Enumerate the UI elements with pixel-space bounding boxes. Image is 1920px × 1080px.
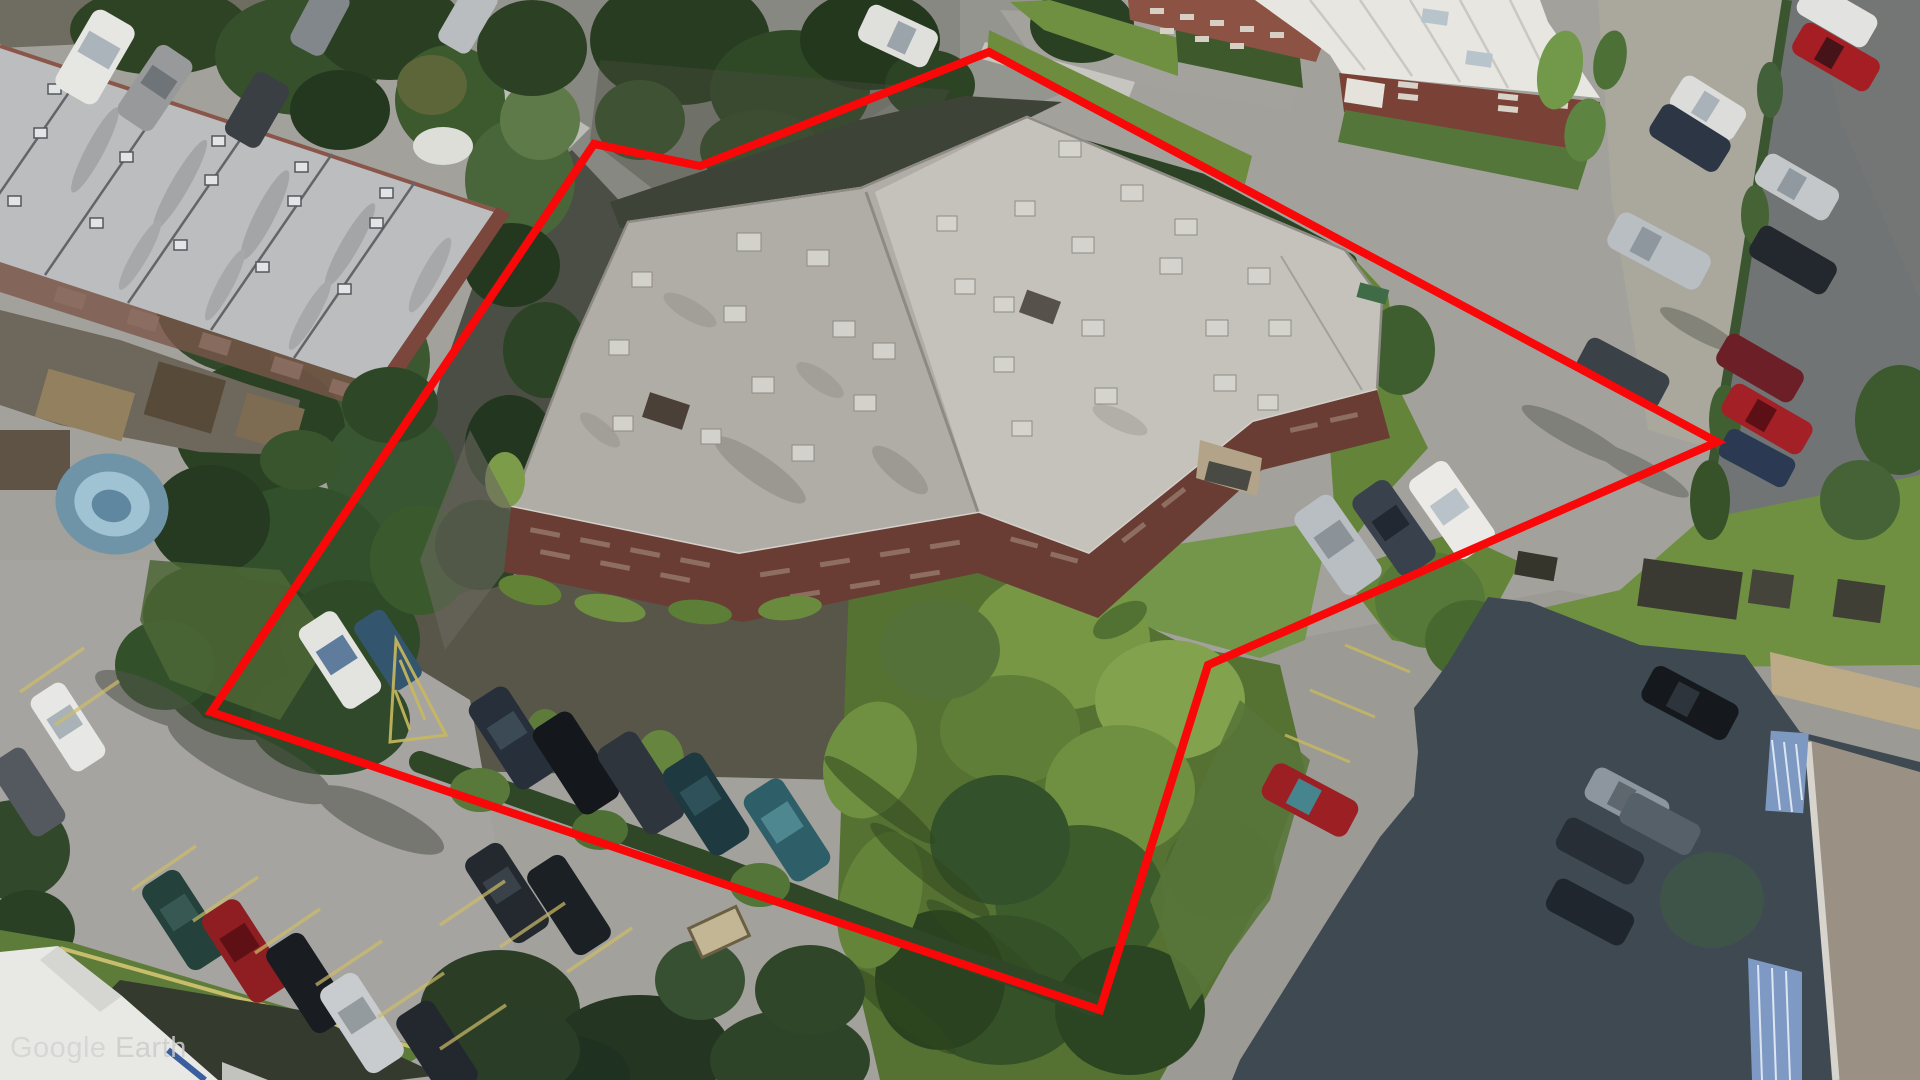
svg-text:Google Earth: Google Earth [10, 1032, 187, 1064]
